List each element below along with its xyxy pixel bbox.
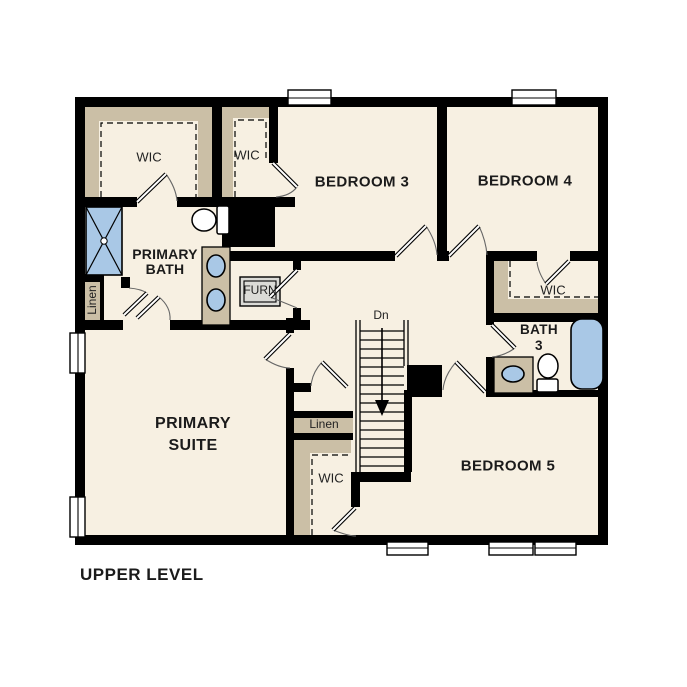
toilet-chase [228, 197, 275, 247]
primary-suite-label: PRIMARY SUITE [155, 413, 231, 457]
bath3-toilet [537, 354, 558, 392]
bath3-label: BATH 3 [520, 322, 558, 354]
floor-plan: WIC WIC BEDROOM 3 BEDROOM 4 PRIMARY BATH… [0, 0, 687, 687]
primary-toilet [192, 206, 229, 234]
bathtub [571, 319, 603, 389]
bedroom5-wic-label: WIC [318, 472, 343, 487]
primary-linen-label: Linen [86, 285, 100, 314]
primary-bath-label: PRIMARY BATH [132, 247, 197, 277]
furnace-label: FURN [243, 284, 276, 298]
primary-wic-label: WIC [136, 151, 161, 166]
bedroom4-label: BEDROOM 4 [478, 172, 572, 189]
sink [502, 366, 524, 382]
bedroom3-wic-label: WIC [234, 149, 259, 164]
plan-title: UPPER LEVEL [80, 565, 204, 585]
hall-linen-label: Linen [309, 418, 338, 432]
bedroom4-wic-label: WIC [540, 284, 565, 299]
sink [207, 255, 225, 277]
sink [207, 289, 225, 311]
shower [86, 207, 122, 275]
bath3-vanity [494, 357, 533, 393]
shower-drain [101, 238, 107, 244]
bedroom3-label: BEDROOM 3 [315, 173, 409, 190]
primary-vanity [202, 247, 230, 325]
stairs-down-label: Dn [373, 309, 388, 323]
bedroom5-label: BEDROOM 5 [461, 457, 555, 474]
stair-landing-wall [407, 365, 442, 397]
